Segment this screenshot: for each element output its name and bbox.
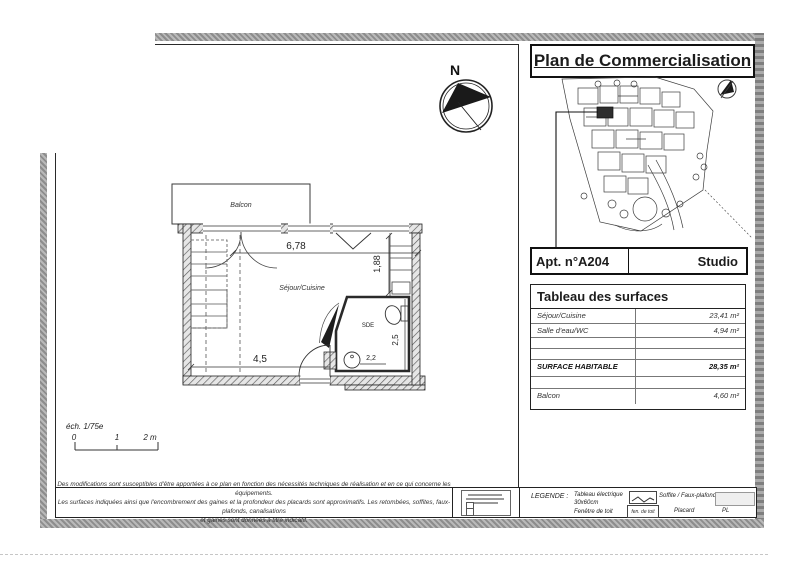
dimension-bottom: 4,5 (188, 354, 330, 370)
disclaimer-line: Les surfaces indiquées ainsi que l'encom… (56, 498, 452, 516)
svg-text:2,2: 2,2 (366, 355, 376, 362)
closet-symbol-text: PL (722, 508, 729, 514)
balcony-label: Balcon (230, 202, 252, 209)
disclaimer-line: et gaines sont données à titre indicatif… (56, 516, 452, 525)
legend-electrical-label: Tableau électrique (574, 492, 623, 498)
svg-text:4,5: 4,5 (253, 354, 267, 365)
legend: LEGENDE : Tableau électrique 30x60cm Fen… (519, 488, 756, 517)
french-door (203, 224, 281, 269)
dimension-right: 1,88 (372, 233, 392, 296)
balcony: Balcon (172, 184, 310, 224)
architect-stamp (461, 490, 511, 516)
roof-window-symbol-text: fen. de toit (631, 509, 654, 515)
scan-artifact-line (0, 554, 768, 555)
legend-electrical-size: 30x60cm (574, 500, 598, 506)
highlighted-unit (597, 107, 613, 118)
scale-label: éch. 1/75e (66, 422, 104, 431)
scale-bar: éch. 1/75e 0 1 2 m (66, 422, 158, 450)
svg-text:1,88: 1,88 (372, 255, 382, 273)
footer-strip: Des modifications sont susceptibles d'êt… (55, 487, 757, 518)
site-plan (556, 77, 752, 247)
soffit-symbol (715, 492, 755, 506)
site-north-icon (718, 80, 736, 98)
living-room-label: Séjour/Cuisine (279, 285, 325, 292)
svg-text:2,5: 2,5 (391, 334, 400, 346)
bathroom-label: SDE (362, 323, 374, 329)
disclaimer: Des modifications sont susceptibles d'êt… (56, 488, 453, 517)
legend-closet-label: Placard (674, 508, 694, 514)
svg-text:1: 1 (115, 433, 119, 442)
disclaimer-line: Des modifications sont susceptibles d'êt… (56, 480, 452, 498)
electrical-panel-symbol (629, 491, 657, 504)
roof-window-symbol: fen. de toit (627, 505, 659, 518)
north-label: N (450, 62, 460, 78)
scanned-plan-sheet: Plan de Commercialisation Apt. n°A204 St… (0, 0, 799, 565)
bathroom: SDE (320, 297, 410, 371)
bay-window (333, 224, 409, 250)
north-arrow: N (440, 62, 492, 132)
legend-roof-window-label: Fenêtre de toit (574, 509, 613, 515)
legend-title: LEGENDE : (531, 493, 568, 500)
legend-soffit-label: Soffite / Faux-plafond (659, 493, 716, 499)
stamp-cell (453, 488, 520, 517)
closet-shelves (390, 233, 412, 298)
window (288, 224, 330, 234)
svg-text:2 m: 2 m (142, 433, 157, 442)
dimension-top: 6,78 (230, 241, 421, 256)
svg-text:0: 0 (72, 433, 77, 442)
svg-text:6,78: 6,78 (286, 241, 306, 252)
kitchen-units (191, 235, 240, 374)
